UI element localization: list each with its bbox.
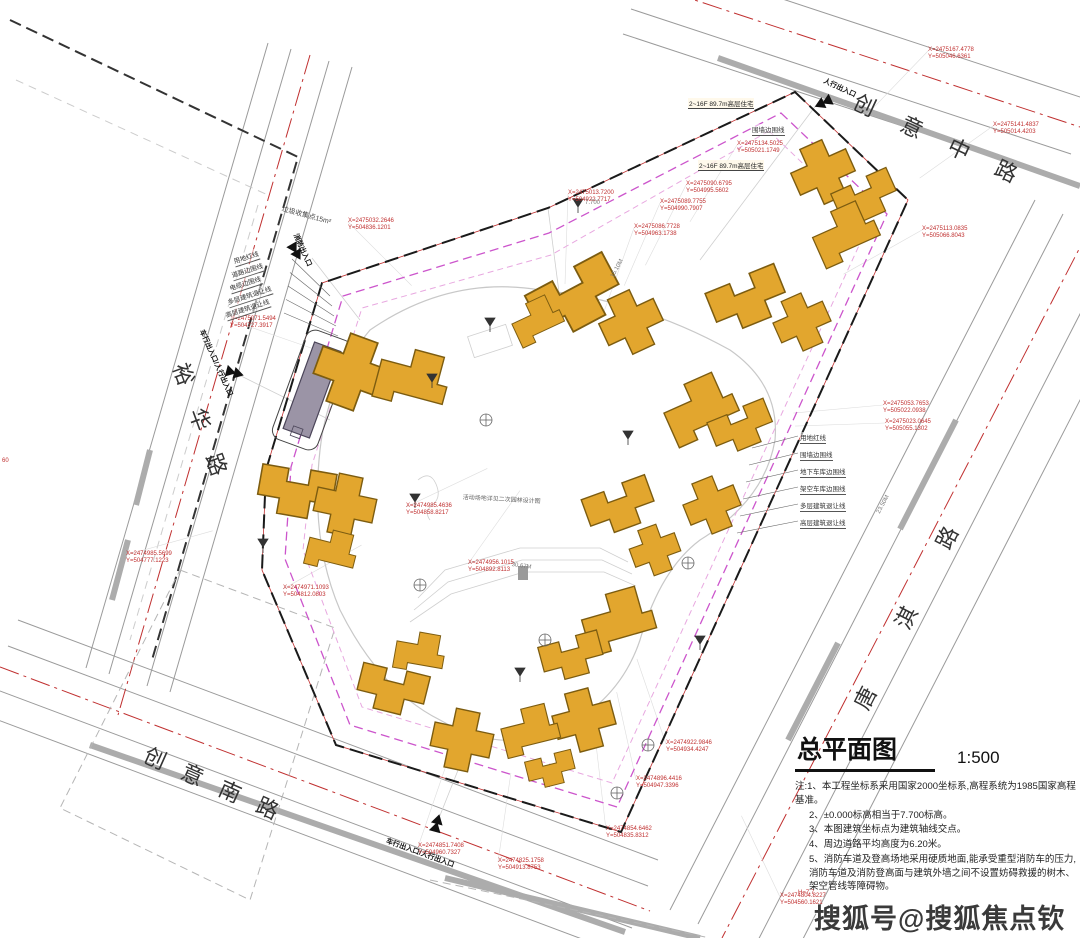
building-footprint	[372, 342, 454, 414]
coordinate-label: X=2474922.9846Y=504934.4247	[666, 740, 712, 754]
coordinate-leader-line	[793, 405, 883, 413]
callout-leader	[737, 521, 798, 533]
coordinate-label: X=2474985.4636Y=504858.8217	[406, 503, 452, 517]
building-footprint	[766, 286, 837, 357]
note-line: 2、±0.000标高相当于7.700标高。	[795, 809, 1080, 823]
coordinate-label: X=2475141.4837Y=505014.4203	[993, 122, 1039, 136]
coordinate-label: X=2474854.6462Y=504835.8312	[606, 826, 652, 840]
spot-elevation-icon	[485, 318, 495, 332]
drawing-notes: 注:1、本工程坐标系采用国家2000坐标系,高程系统为1985国家高程基准。2、…	[795, 780, 1080, 894]
building-footprint	[426, 704, 497, 775]
drawing-scale: 1:500	[957, 748, 1000, 772]
coordinate-label: X=2475053.7653Y=505022.0938	[883, 401, 929, 415]
coordinate-label: X=2475086.7728Y=504963.1738	[634, 224, 680, 238]
coordinate-label: X=2474956.1015Y=504892.8113	[468, 560, 514, 574]
coordinate-label: X=2475023.0645Y=505055.1302	[885, 419, 931, 433]
coordinate-label: X=2474804.8227Y=504560.1621	[780, 893, 826, 907]
coordinate-leader-line	[795, 423, 885, 426]
building-footprint	[547, 683, 620, 756]
title-block: 总平面图 1:500 注:1、本工程坐标系采用国家2000坐标系,高程系统为19…	[795, 730, 1080, 895]
watermark: 搜狐号@搜狐焦点钦州站	[814, 897, 1080, 938]
highrise-tag-1: 2~16F 89.7m高层住宅	[688, 98, 754, 109]
building-footprint	[524, 749, 578, 790]
note-line: 4、周边道路平均高度为6.20米。	[795, 838, 1080, 852]
legend-callout: 架空车库边围线	[800, 483, 846, 495]
coordinate-label: X=2475167.4778Y=505046.6361	[928, 47, 974, 61]
callout-leader	[746, 470, 798, 482]
spot-elevation-icon	[695, 636, 705, 650]
callout-leader	[743, 487, 798, 499]
coordinate-label: X=2474985.5699Y=504777.1223	[126, 551, 172, 565]
building-footprint	[392, 628, 447, 675]
building-footprint	[537, 630, 606, 684]
coordinate-label: X=2475071.5494Y=504727.3917	[230, 316, 276, 330]
legend-callout: 地下车库边围线	[800, 466, 846, 478]
coordinate-leader-line	[498, 773, 511, 862]
entrance-arrow-icon	[429, 813, 445, 833]
legend-callout: 高层建筑退让线	[800, 517, 846, 529]
spot-elevation-icon	[623, 431, 633, 445]
coordinate-label: X=2475089.7755Y=504990.7907	[660, 199, 706, 213]
note-line: 注:1、本工程坐标系采用国家2000坐标系,高程系统为1985国家高程基准。	[795, 780, 1080, 808]
legend-callout: 围墙边围线	[800, 449, 833, 461]
building-footprint	[624, 519, 686, 581]
building-footprint	[677, 470, 747, 540]
highrise-tag-2: 2~16F 89.7m高层住宅	[698, 160, 764, 171]
survey-point-icon	[642, 739, 654, 751]
note-line: 3、本图建筑坐标点为建筑轴线交点。	[795, 823, 1080, 837]
survey-point-icon	[611, 787, 623, 799]
coordinate-leader-line	[741, 816, 780, 897]
spot-elevation-icon	[258, 539, 268, 553]
legend-callout: 多层建筑退让线	[800, 500, 846, 512]
survey-point-icon	[682, 557, 694, 569]
coordinate-leader-line	[596, 741, 606, 830]
callout-leader	[288, 286, 334, 316]
site-plan-canvas: 创意中路 裕华路 创意南路 唐淇路 人行出入口 消防出入口 车行出入口/人行出入…	[0, 0, 1080, 938]
note-line: 5、消防车道及登高场地采用硬质地面,能承受重型消防车的压力,消防车道及消防登高面…	[795, 853, 1080, 894]
coordinate-leader-line	[565, 194, 568, 284]
coordinate-leader-line	[624, 203, 660, 286]
coordinate-label: X=2475032.2646Y=504836.1201	[348, 218, 394, 232]
coordinate-label: X=2475090.6795Y=504995.5602	[686, 181, 732, 195]
survey-point-icon	[480, 414, 492, 426]
left-edge-mark: 60	[2, 458, 9, 465]
fence-line-callout: 围墙边围线	[752, 124, 785, 136]
survey-point-icon	[539, 634, 551, 646]
coordinate-label: X=2474971.1093Y=504812.0803	[283, 585, 329, 599]
coordinate-label: X=2474851.7408Y=504960.7327	[418, 843, 464, 857]
building-footprint	[497, 701, 562, 758]
coordinate-label: X=2475113.0835Y=505066.8043	[922, 226, 967, 240]
building-footprint	[591, 282, 671, 362]
callout-leader	[284, 313, 338, 336]
legend-callout: 用地红线	[800, 432, 826, 444]
survey-point-icon	[414, 579, 426, 591]
coordinate-label: X=2474896.4416Y=504947.3396	[636, 776, 682, 790]
drawing-title: 总平面图	[795, 730, 935, 772]
coordinate-label: X=2474825.1758Y=504913.8753	[498, 858, 544, 872]
dimension-label: 7.700	[585, 200, 600, 206]
building-footprint	[354, 660, 431, 719]
coordinate-label: X=2475134.5025Y=505021.1749	[737, 141, 783, 155]
spot-elevation-icon	[515, 668, 525, 682]
